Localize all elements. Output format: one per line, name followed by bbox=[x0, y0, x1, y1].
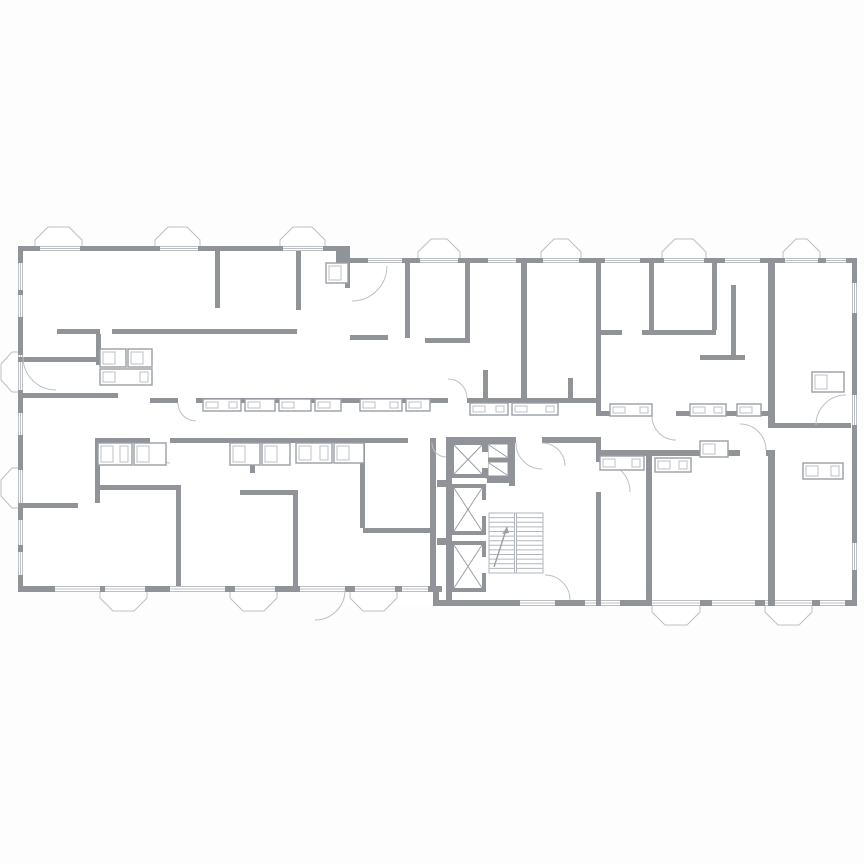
door-arc bbox=[315, 590, 345, 620]
staircase bbox=[489, 513, 543, 573]
wall-segment bbox=[345, 586, 355, 592]
wall-segment bbox=[646, 453, 652, 606]
wall-segment bbox=[430, 438, 436, 586]
fixture-inner bbox=[693, 407, 705, 413]
bay-window bbox=[1, 468, 18, 508]
wall-segment bbox=[852, 425, 857, 543]
fixture-inner bbox=[496, 406, 504, 412]
wall-segment bbox=[731, 285, 736, 357]
wall-segment bbox=[18, 290, 23, 295]
wall-segment bbox=[80, 246, 160, 251]
wall-segment bbox=[818, 258, 826, 263]
bay-window bbox=[652, 606, 700, 625]
wall-segment bbox=[768, 423, 851, 428]
fixture-inner bbox=[282, 402, 294, 408]
wall-segment bbox=[18, 393, 118, 398]
wall-segment bbox=[568, 378, 573, 403]
wall-segment bbox=[402, 258, 420, 263]
wall-segment bbox=[405, 263, 410, 338]
elevator-door-opening bbox=[482, 452, 488, 468]
fixture-inner bbox=[831, 466, 839, 476]
wall-segment bbox=[363, 528, 430, 533]
wall-segment bbox=[845, 600, 857, 606]
wall-segment bbox=[555, 600, 585, 606]
wall-segment bbox=[100, 586, 105, 592]
fixture-inner bbox=[473, 406, 485, 412]
fixture-inner bbox=[363, 402, 375, 408]
wall-segment bbox=[642, 330, 716, 335]
wall-segment bbox=[640, 258, 664, 263]
fixture-inner bbox=[320, 446, 328, 460]
fixture-inner bbox=[329, 266, 341, 280]
fixture-inner bbox=[515, 406, 527, 412]
fixture-inner bbox=[603, 459, 615, 467]
bay-window bbox=[765, 606, 812, 625]
floor-plan-svg bbox=[0, 0, 864, 864]
fixture-inner bbox=[101, 446, 113, 462]
fixture-inner bbox=[390, 402, 398, 408]
fixture-inner bbox=[613, 407, 625, 413]
fixture-inner bbox=[632, 459, 640, 467]
wall-segment bbox=[465, 263, 470, 338]
wall-segment bbox=[395, 586, 402, 592]
wall-segment bbox=[700, 600, 712, 606]
wall-segment bbox=[438, 600, 520, 606]
wall-segment bbox=[704, 258, 725, 263]
fixture-inner bbox=[265, 446, 277, 462]
wall-segment bbox=[596, 330, 622, 335]
bay-window bbox=[280, 227, 325, 246]
elevator-door-opening bbox=[482, 557, 488, 573]
elevator-door-opening bbox=[482, 500, 488, 516]
wall-segment bbox=[579, 258, 605, 263]
fixture-inner bbox=[640, 407, 648, 413]
wall-segment bbox=[225, 586, 235, 592]
wall-segment bbox=[198, 246, 283, 251]
wall-segment bbox=[760, 258, 785, 263]
fixture-inner bbox=[299, 446, 311, 460]
fixture-inner bbox=[103, 352, 115, 364]
wall-segment bbox=[425, 338, 470, 343]
wall-segment bbox=[596, 492, 601, 606]
wall-segment bbox=[521, 263, 527, 398]
wall-segment bbox=[18, 317, 23, 355]
bay-window bbox=[155, 227, 200, 246]
wall-segment bbox=[97, 438, 150, 443]
wall-segment bbox=[215, 251, 220, 308]
fixture-inner bbox=[131, 352, 143, 364]
wall-segment bbox=[145, 586, 170, 592]
wall-segment bbox=[296, 251, 301, 310]
fixture-inner bbox=[103, 372, 115, 382]
bay-window bbox=[541, 239, 581, 258]
fixture-inner bbox=[815, 375, 827, 389]
wall-segment bbox=[852, 258, 857, 283]
fixture-inner bbox=[658, 461, 670, 469]
wall-segment bbox=[467, 398, 596, 403]
wall-segment bbox=[350, 335, 388, 340]
wall-segment bbox=[712, 263, 717, 330]
wall-segment bbox=[18, 586, 55, 592]
wall-segment bbox=[293, 490, 298, 586]
wall-segment bbox=[18, 357, 98, 362]
wall-segment bbox=[812, 600, 820, 606]
bay-window bbox=[350, 592, 397, 611]
wall-segment bbox=[95, 485, 176, 490]
wall-segment bbox=[18, 506, 23, 520]
wall-segment bbox=[176, 485, 181, 586]
fixture-inner bbox=[229, 402, 237, 408]
wall-segment bbox=[768, 263, 775, 423]
fixture-inner bbox=[233, 446, 245, 462]
floor-plan-canvas bbox=[0, 0, 864, 864]
fixture-inner bbox=[679, 461, 687, 469]
fixture-inner bbox=[318, 402, 330, 408]
wall-segment bbox=[240, 490, 293, 495]
wall-segment bbox=[437, 538, 452, 545]
bay-window bbox=[783, 239, 820, 258]
fixture-inner bbox=[740, 407, 752, 413]
bay-window bbox=[100, 592, 147, 611]
bay-window bbox=[418, 239, 460, 258]
wall-segment bbox=[542, 437, 596, 443]
fixture-inner bbox=[703, 444, 715, 454]
bay-window bbox=[230, 592, 277, 611]
wall-segment bbox=[852, 313, 857, 395]
wall-segment bbox=[150, 398, 178, 403]
wall-segment bbox=[18, 545, 23, 552]
wall-segment bbox=[649, 263, 654, 330]
wall-segment bbox=[516, 258, 543, 263]
right-section-floor bbox=[346, 258, 857, 606]
wall-segment bbox=[483, 370, 488, 398]
fixture-inner bbox=[337, 446, 349, 460]
fixture-inner bbox=[714, 407, 722, 413]
wall-segment bbox=[57, 329, 100, 334]
wall-segment bbox=[18, 435, 23, 470]
fixture-inner bbox=[409, 402, 421, 408]
bay-window bbox=[1, 352, 18, 392]
fixture-inner bbox=[248, 402, 260, 408]
wall-segment bbox=[755, 600, 765, 606]
wall-segment bbox=[437, 480, 452, 487]
wall-segment bbox=[18, 503, 78, 508]
wall-segment bbox=[433, 586, 439, 606]
fixture-inner bbox=[137, 446, 149, 462]
wall-segment bbox=[112, 329, 297, 334]
wall-segment bbox=[458, 258, 488, 263]
fixture-inner bbox=[806, 466, 818, 476]
wall-segment bbox=[768, 453, 775, 606]
fixture-inner bbox=[546, 406, 554, 412]
bay-window bbox=[35, 227, 82, 246]
fixture-inner bbox=[206, 402, 218, 408]
wall-segment bbox=[18, 246, 23, 263]
wall-segment bbox=[170, 438, 408, 443]
bay-window bbox=[662, 239, 706, 258]
fixture-inner bbox=[140, 372, 148, 382]
fixture-inner bbox=[120, 446, 128, 462]
wall-segment bbox=[275, 586, 300, 592]
wall-segment bbox=[700, 355, 745, 360]
